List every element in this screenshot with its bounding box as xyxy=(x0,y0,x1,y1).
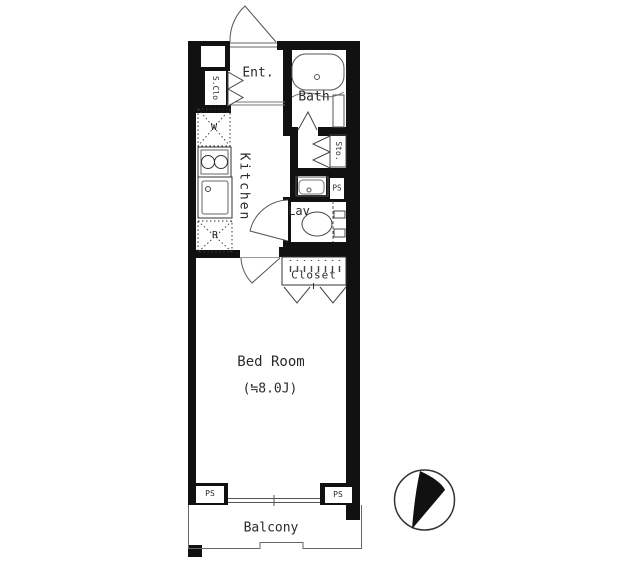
wall-corridor-right xyxy=(290,127,298,197)
storage-door-2 xyxy=(313,152,330,168)
floor-plan-drawing xyxy=(0,0,640,569)
walls xyxy=(188,41,360,557)
washbasin-bowl xyxy=(299,180,324,194)
entrance-area xyxy=(227,6,285,106)
ps-bottom-left-label: PS xyxy=(205,490,215,498)
wall-right xyxy=(346,41,360,520)
closet-label: Closet xyxy=(291,270,337,281)
shoe-closet-label: S.Clo xyxy=(211,76,219,100)
toilet-tank-top xyxy=(334,211,345,218)
entrance-label: Ent. xyxy=(242,67,273,80)
bath-door xyxy=(298,112,317,130)
floor-plan-page: Ent. Bath Kitchen S.Clo Sto. PS Lav Clos… xyxy=(0,0,640,569)
shoe-closet-door-2 xyxy=(228,89,243,106)
bedroom-door-arc xyxy=(241,258,280,283)
north-compass xyxy=(395,470,455,530)
wall-balcony-corner xyxy=(188,545,202,557)
balcony-bottom-edge xyxy=(188,543,361,549)
ps-middle-label: PS xyxy=(332,184,341,192)
bath-counter xyxy=(333,95,344,127)
entrance-door-arc xyxy=(230,6,276,42)
washbasin-drain xyxy=(307,188,311,192)
fridge-space-label: R xyxy=(212,231,218,241)
storage-door-1 xyxy=(313,136,330,152)
lavatory-label: Lav xyxy=(288,205,310,217)
washer-space-label: W xyxy=(211,123,217,133)
toilet-tank-bottom xyxy=(334,229,345,237)
bedroom-size-label: (≒8.0J) xyxy=(243,383,298,396)
shoe-closet-door-1 xyxy=(228,72,243,89)
storage-label: Sto. xyxy=(334,141,342,160)
wall-ent-bath xyxy=(283,41,292,135)
closet-door-left xyxy=(284,287,310,303)
balcony-label: Balcony xyxy=(244,522,299,535)
wall-bedroom-top xyxy=(196,250,240,258)
kitchen-label: Kitchen xyxy=(238,153,251,222)
lav-door-arc xyxy=(250,200,288,241)
bath-label: Bath xyxy=(298,91,329,104)
wall-closet-top xyxy=(279,247,347,257)
bedroom-label: Bed Room xyxy=(237,355,304,369)
closet-door-right xyxy=(320,287,346,303)
ps-bottom-right-label: PS xyxy=(333,491,343,499)
bathtub xyxy=(292,54,344,90)
sink xyxy=(198,177,232,218)
meter-box xyxy=(201,46,225,67)
